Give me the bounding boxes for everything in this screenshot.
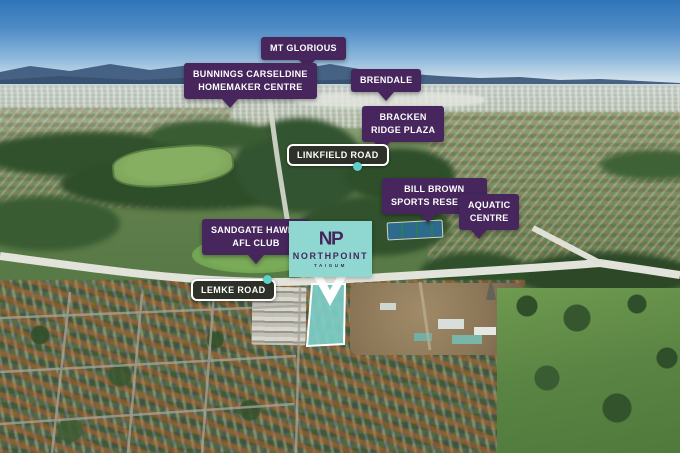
label-text: AFL CLUB xyxy=(211,237,301,250)
label-text: MT GLORIOUS xyxy=(270,42,337,55)
road-marker-dot xyxy=(263,275,272,284)
label-box: AQUATIC CENTRE xyxy=(459,194,519,230)
label-box: MT GLORIOUS xyxy=(261,37,346,60)
label-text: CENTRE xyxy=(468,212,510,225)
label-text: SANDGATE HAWKS xyxy=(211,224,301,237)
label-pointer xyxy=(222,99,238,108)
map-label-mt-glorious: MT GLORIOUS xyxy=(261,37,346,60)
road-label-linkfield: LINKFIELD ROAD xyxy=(287,144,389,166)
label-pointer xyxy=(378,92,394,101)
label-pointer xyxy=(420,214,436,223)
label-box: BRENDALE xyxy=(351,69,421,92)
map-label-bracken-ridge-plaza: BRACKEN RIDGE PLAZA xyxy=(362,106,444,142)
label-text: RIDGE PLAZA xyxy=(371,124,435,137)
label-text: BUNNINGS CARSELDINE xyxy=(193,68,308,81)
road-label-lemke: LEMKE ROAD xyxy=(191,279,276,301)
aerial-map: NP NORTHPOINT TAIGUM MT GLORIOUS BUNNING… xyxy=(0,0,680,453)
northpoint-suburb: TAIGUM xyxy=(314,263,347,268)
northpoint-wordmark: NORTHPOINT xyxy=(293,251,369,261)
label-pointer xyxy=(471,230,487,239)
label-text: AQUATIC xyxy=(468,199,510,212)
label-text: BRACKEN xyxy=(371,111,435,124)
road-label-text: LEMKE ROAD xyxy=(201,285,266,295)
label-pointer xyxy=(248,255,264,264)
map-label-brendale: BRENDALE xyxy=(351,69,421,92)
map-label-bunnings-carseldine: BUNNINGS CARSELDINE HOMEMAKER CENTRE xyxy=(184,63,317,99)
map-label-aquatic-centre: AQUATIC CENTRE xyxy=(459,194,519,230)
label-box: BRACKEN RIDGE PLAZA xyxy=(362,106,444,142)
label-box: BUNNINGS CARSELDINE HOMEMAKER CENTRE xyxy=(184,63,317,99)
northpoint-monogram: NP xyxy=(319,230,342,248)
northpoint-logo-card: NP NORTHPOINT TAIGUM xyxy=(289,221,372,277)
label-text: BRENDALE xyxy=(360,74,412,87)
label-text: HOMEMAKER CENTRE xyxy=(193,81,308,94)
road-label-text: LINKFIELD ROAD xyxy=(297,150,379,160)
